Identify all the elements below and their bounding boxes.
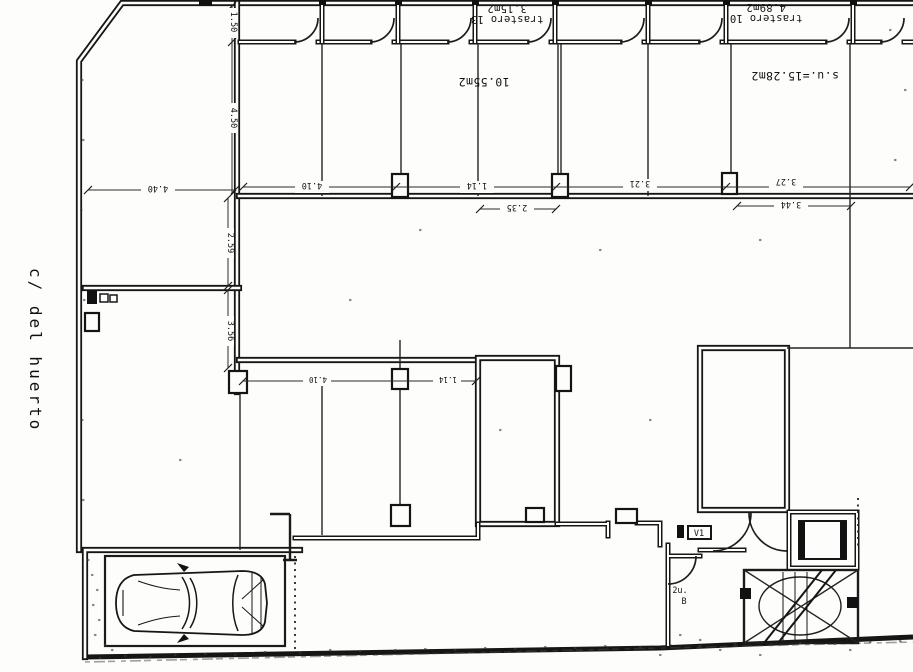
thin-partitions [240, 44, 913, 550]
electrical-panel-symbol [87, 290, 117, 304]
door-label-line1: 2u. [672, 586, 687, 596]
dim-main-3: 3.21 [630, 178, 650, 188]
dim-vert-4: 3.56 [225, 321, 235, 341]
street-name-label: c/ del huerto [26, 268, 45, 432]
vent-box-label: V1 [694, 529, 704, 539]
dim-sub-1: 2.35 [507, 202, 527, 212]
dim-vert-3: 2.59 [225, 233, 235, 253]
car-top-view [116, 563, 267, 643]
open-area-label: 10.55m2 [458, 75, 509, 89]
floor-plan-svg: 4.40 4.10 1.14 3.21 3.27 2.35 3.44 4.10 … [0, 0, 913, 672]
pillars [85, 173, 737, 526]
dim-left-horiz: 4.40 [148, 183, 168, 193]
bottom-right-walls [270, 514, 744, 645]
dim-vert-2: 4.50 [228, 108, 238, 128]
dim-main-4: 3.27 [776, 176, 796, 186]
dim-main-1: 4.10 [302, 180, 322, 190]
dim-vert-1: 1.50 [228, 12, 238, 32]
door-label-line2: B [681, 597, 686, 607]
entry-door-arcs [668, 513, 787, 584]
trastero-10-area-label: 4.89m2 [746, 1, 786, 13]
trastero-partition-walls [240, 3, 913, 42]
scanned-floor-plan-sheet: 4.40 4.10 1.14 3.21 3.27 2.35 3.44 4.10 … [0, 0, 913, 672]
staircase [740, 570, 858, 643]
parking-space [105, 556, 295, 650]
trastero-13-name-label: trastero 13 [471, 13, 544, 25]
trastero-door-arcs [294, 18, 904, 42]
scan-noise [81, 30, 906, 658]
useful-area-label: s.u.=15.28m2 [751, 69, 839, 83]
dim-main-2: 1.14 [467, 180, 487, 190]
elevator [789, 512, 857, 568]
dim-mid-1: 4.10 [308, 375, 327, 384]
dim-sub-2: 3.44 [781, 199, 801, 209]
trastero-10-name-label: trastero 10 [730, 12, 803, 24]
dim-mid-2: 1.14 [438, 375, 457, 384]
trastero-13-area-label: 3.15m2 [487, 2, 527, 14]
door-room-labels: 2u. B [672, 586, 687, 607]
vent-box: V1 [677, 525, 711, 539]
